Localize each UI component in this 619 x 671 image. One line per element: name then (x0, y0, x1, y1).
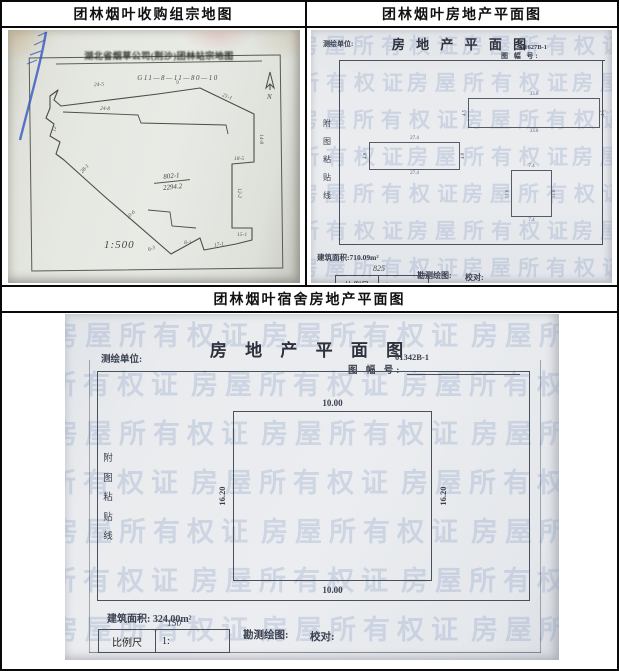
watermark-text: 房屋所有权证 (65, 657, 185, 660)
building-dimension: 7.4 (528, 218, 534, 223)
buildings-layer: 33.033.04.54.527.427.44.84.87.47.411.611… (311, 30, 612, 283)
building-dimension: 4.8 (364, 153, 369, 159)
building-outline: 7.47.411.611.6 (511, 170, 552, 217)
watermark-text: 房屋所有权证 (471, 608, 559, 647)
scale-label: 比例尺 (99, 630, 156, 652)
section-title-parcel-map: 团林烟叶收购组宗地图 (2, 2, 305, 26)
watermark-text: 房屋所有权证 (261, 608, 465, 647)
edge-dimension-label: 12 (51, 126, 58, 132)
paste-line-char: 图 (101, 470, 115, 484)
building-dimension: 7.4 (528, 164, 534, 169)
dim-bottom: 10.00 (322, 585, 342, 595)
building-dimension: 33.0 (530, 92, 539, 97)
section-title-dorm-plan: 团林烟叶宿舍房地产平面图 (2, 287, 617, 311)
grid-line-mid-title-top (0, 285, 619, 287)
edge-dimension-label: 17-1 (214, 241, 225, 248)
building-area-text: 建筑面积:710.09m² (317, 252, 379, 263)
watermark-text: 房屋所有权证 (191, 657, 395, 660)
scanned-photo-parcel-map: 湖北省烟草公司(荆沙)团林站宗地图 G11—8—11—80—10 N 24-59… (8, 30, 300, 283)
edge-dimension-label: 24-5 (94, 82, 104, 89)
grid-line-under-top-titles (0, 26, 619, 28)
paste-line-char: 线 (101, 528, 115, 542)
scale-box: 比例尺 1: (335, 275, 429, 283)
building-dimension: 4.8 (461, 153, 466, 159)
form-left-border (89, 360, 90, 653)
building-dimension: 27.4 (410, 171, 419, 176)
paste-line-char: 粘 (101, 489, 115, 503)
dim-right: 16.20 (438, 486, 448, 505)
paste-line-char: 附 (101, 450, 115, 464)
grid-line-vertical-divider (305, 0, 307, 287)
survey-drawing-label: 勘测绘图: (243, 627, 289, 642)
proofread-label: 校对: (465, 272, 484, 283)
dorm-building-outline: 10.00 10.00 16.20 16.20 (233, 411, 432, 581)
building-dimension: 4.5 (463, 110, 468, 116)
building-outline: 33.033.04.54.5 (468, 98, 600, 128)
building-outline: 27.427.44.84.8 (369, 142, 460, 170)
building-dimension: 33.0 (530, 129, 539, 134)
parcel-number: 802-1 (163, 171, 180, 181)
edge-dimension-label: 21-1 (221, 92, 233, 101)
edge-dimension-label: 12-2 (236, 188, 242, 198)
survey-drawing-label: 勘测绘图: (417, 270, 452, 281)
form-bottom-border (89, 652, 541, 653)
scale-prefix: 1: (156, 630, 229, 652)
scanned-document-page: 团林烟叶收购组宗地图 团林烟叶房地产平面图 团林烟叶宿舍房地产平面图 湖北省烟草… (0, 0, 619, 671)
edge-dimension-label: 24-8 (100, 106, 110, 112)
edge-dimension-label: 10-6 (125, 209, 137, 220)
edge-dimension-label: 14-8 (258, 134, 264, 144)
scale-value-handwritten: 825 (373, 264, 385, 273)
grid-line-mid-title-bottom (0, 311, 619, 313)
scanned-photo-estate-plan: 房屋所有权证房屋所有权证房屋所有权证房屋所有权证房屋所有权证房屋所有权证房屋所有… (311, 30, 612, 283)
edge-dimension-label: 18-5 (234, 156, 244, 162)
building-dimension: 11.6 (506, 189, 511, 198)
scale-box: 比例尺 1: (98, 629, 230, 653)
surveyor-label: 测绘单位: (101, 351, 142, 365)
edge-dimension-label: 15-1 (237, 232, 247, 238)
dim-top: 10.00 (322, 398, 342, 408)
form-right-border (540, 360, 541, 653)
watermark-text: 房屋所有权证 (401, 657, 559, 660)
scale-value-handwritten: 150 (167, 619, 181, 629)
proofread-label: 校对: (310, 629, 335, 644)
paste-line-char: 贴 (101, 509, 115, 523)
edge-label-layer: 24-5921-114-818-512-215-117-18-110-628-1… (8, 30, 300, 283)
watermark-text: 房屋所有权证 (471, 314, 559, 353)
section-title-estate-plan: 团林烟叶房地产平面图 (307, 2, 617, 26)
scanned-photo-dorm-plan: 房屋所有权证房屋所有权证房屋所有权证房屋所有权证房屋所有权证房屋所有权证房屋所有… (65, 314, 559, 660)
edge-dimension-label: 28-1 (79, 163, 90, 175)
building-dimension: 27.4 (410, 136, 419, 141)
edge-dimension-label: 8-1 (184, 240, 191, 246)
edge-dimension-label: 6-3 (147, 245, 156, 253)
scale-label: 比例尺 (336, 276, 379, 283)
building-dimension: 11.6 (553, 189, 558, 198)
map-scale-label: 1:500 (104, 239, 135, 251)
edge-dimension-label: 9 (176, 80, 179, 86)
dim-left: 16.20 (217, 486, 227, 505)
sheet-code: 01342B-1 (395, 352, 429, 362)
building-dimension: 4.5 (601, 110, 606, 116)
